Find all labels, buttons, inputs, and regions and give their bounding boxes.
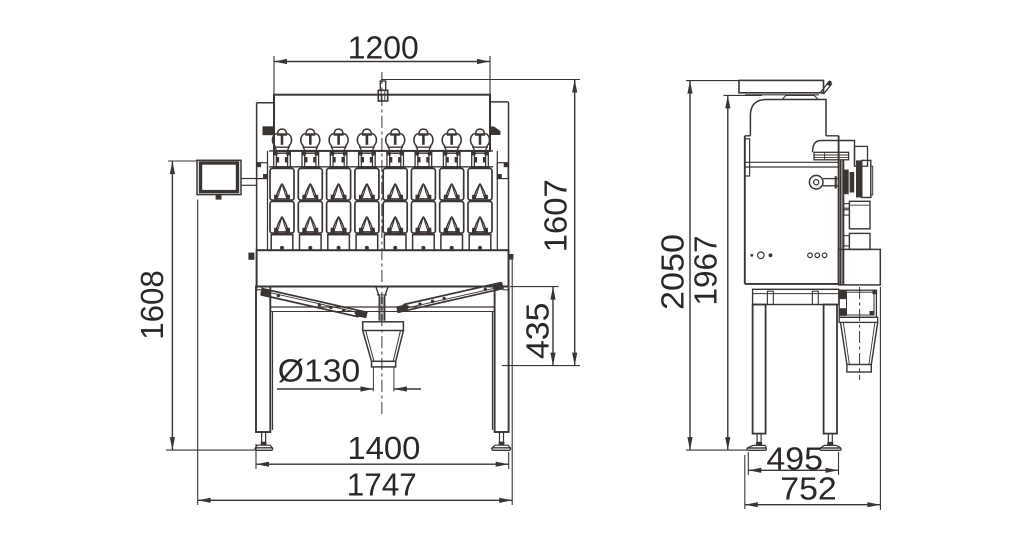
svg-text:1747: 1747: [347, 466, 417, 502]
svg-text:1400: 1400: [347, 430, 420, 466]
svg-text:1608: 1608: [134, 270, 170, 340]
svg-text:435: 435: [520, 303, 556, 360]
svg-text:1967: 1967: [688, 236, 724, 306]
svg-text:1607: 1607: [537, 179, 573, 252]
svg-text:Ø130: Ø130: [278, 353, 361, 389]
svg-text:1200: 1200: [348, 30, 419, 66]
svg-text:2050: 2050: [655, 234, 691, 310]
svg-text:752: 752: [780, 471, 837, 507]
